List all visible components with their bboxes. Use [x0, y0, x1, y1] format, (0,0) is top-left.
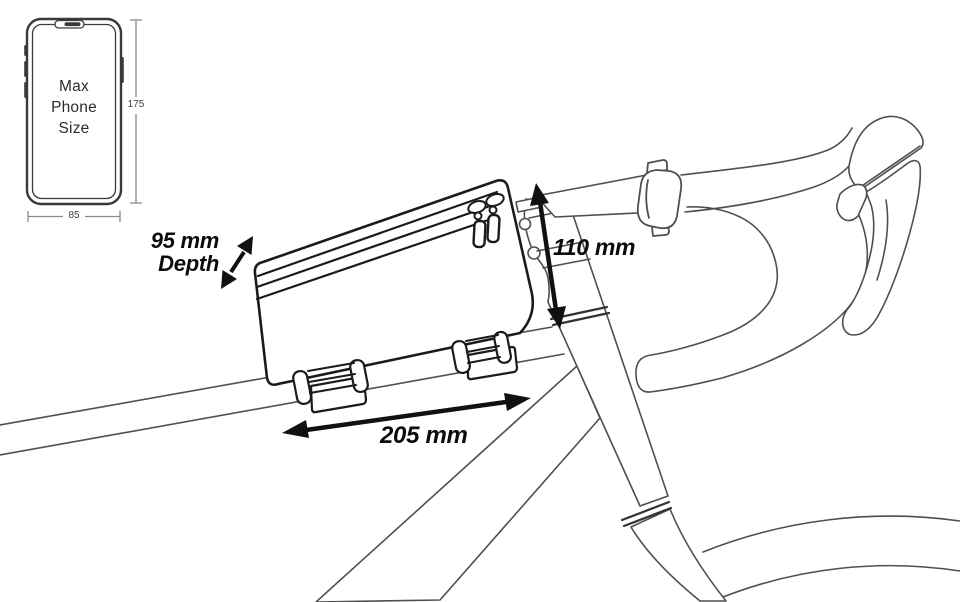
depth-value: 95 mm [133, 229, 219, 252]
fork-blade [631, 509, 726, 601]
handlebar-top [681, 128, 852, 212]
stack-height-label: 110 mm [553, 234, 635, 261]
brake-lever [837, 116, 923, 335]
diagram-canvas [0, 0, 960, 602]
stem-clamp [638, 160, 682, 236]
phone-size-label-line1: Max [27, 76, 121, 97]
depth-arrow-icon [221, 236, 253, 289]
phone-size-label-line2: Phone [27, 97, 121, 118]
phone-size-label: Max Phone Size [27, 76, 121, 139]
front-wheel [703, 516, 960, 597]
bag-length-label: 205 mm [380, 422, 468, 450]
phone-width-value: 85 [64, 210, 84, 221]
phone-speaker-bar [65, 22, 81, 26]
depth-word: Depth [133, 252, 219, 275]
zipper-ring-left [475, 213, 482, 220]
phone-size-label-line3: Size [27, 118, 121, 139]
depth-dimension-label: 95 mm Depth [133, 229, 219, 275]
phone-height-value: 175 [126, 99, 146, 110]
height-dimension-line [130, 20, 142, 203]
zipper-ring-right [490, 207, 497, 214]
hood-clamp-band [837, 184, 867, 220]
handlebar-drop [636, 203, 867, 392]
product-dimension-diagram: Max Phone Size 175 85 95 mm Depth 110 mm… [0, 0, 960, 602]
